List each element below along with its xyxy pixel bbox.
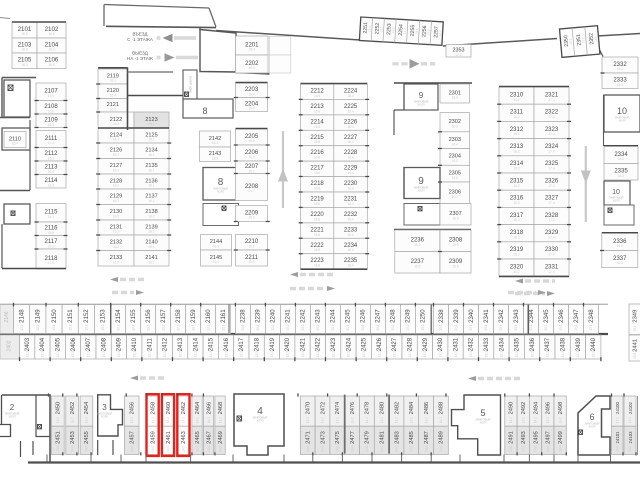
svg-text:8: 8 [218,177,224,188]
svg-text:14.2: 14.2 [365,417,369,423]
svg-text:ХОЛЛ: ХОЛЛ [417,103,424,107]
svg-text:13.3: 13.3 [439,351,443,357]
svg-text:16.0: 16.0 [617,244,623,248]
svg-text:13.1: 13.1 [391,324,395,330]
svg-text:14.0: 14.0 [70,445,74,451]
svg-text:16.0: 16.0 [213,260,219,264]
svg-text:16.6: 16.6 [314,171,320,175]
svg-text:2403: 2403 [25,337,31,351]
svg-text:14.2: 14.2 [218,417,222,423]
svg-text:13.3: 13.3 [347,351,351,357]
svg-text:13.1: 13.1 [484,324,488,330]
svg-text:13.1: 13.1 [514,324,518,330]
svg-text:2464: 2464 [195,402,201,415]
svg-text:4: 4 [257,406,263,417]
svg-text:13.2: 13.2 [594,36,599,42]
svg-text:13.1: 13.1 [574,324,578,330]
svg-text:13.1: 13.1 [406,324,410,330]
svg-text:26.0: 26.0 [249,66,255,70]
svg-text:2417: 2417 [239,337,245,351]
svg-text:14.2: 14.2 [56,417,60,423]
svg-text:16.8: 16.8 [48,32,54,36]
svg-text:15.6: 15.6 [452,264,458,268]
svg-text:2489: 2489 [439,431,445,444]
svg-text:13.3: 13.3 [209,351,213,357]
svg-text:15.4: 15.4 [48,94,54,98]
svg-text:26.4: 26.4 [249,48,255,52]
svg-text:13.3: 13.3 [576,351,580,357]
svg-text:2424: 2424 [346,337,352,351]
svg-text:24101: 24101 [615,431,620,444]
svg-text:16.1: 16.1 [148,214,154,218]
svg-text:2488: 2488 [439,402,445,415]
svg-text:2407: 2407 [86,337,92,351]
svg-text:16.6: 16.6 [314,140,320,144]
svg-text:13.3: 13.3 [270,351,274,357]
svg-text:16.4: 16.4 [110,94,116,98]
svg-text:16.0: 16.0 [452,216,458,220]
svg-text:2482: 2482 [394,402,400,415]
svg-text:14.0: 14.0 [439,445,443,451]
svg-text:2498: 2498 [558,402,564,415]
svg-text:17.4: 17.4 [548,115,554,119]
svg-text:14.0: 14.0 [558,445,562,451]
svg-text:16.2: 16.2 [513,132,519,136]
svg-text:2437: 2437 [545,337,551,351]
svg-text:14.2: 14.2 [534,417,538,423]
svg-text:13.1: 13.1 [469,324,473,330]
svg-text:20.0: 20.0 [48,170,54,174]
svg-text:13.2: 13.2 [581,37,586,43]
svg-text:2479: 2479 [365,431,371,444]
svg-text:2469: 2469 [218,431,224,444]
svg-text:16.1: 16.1 [148,230,154,234]
svg-text:13.3: 13.3 [469,351,473,357]
svg-text:16.2: 16.2 [113,214,119,218]
svg-text:14.2: 14.2 [395,417,399,423]
svg-text:13.2: 13.2 [568,38,573,44]
svg-text:16.3: 16.3 [21,48,27,52]
svg-text:16.1: 16.1 [148,138,154,142]
svg-text:13.1: 13.1 [256,324,260,330]
svg-text:15.3: 15.3 [248,216,254,220]
svg-text:16.3: 16.3 [48,123,54,127]
svg-text:2472: 2472 [320,402,326,415]
svg-text:14.0: 14.0 [85,445,89,451]
svg-text:2441: 2441 [633,339,639,352]
svg-text:16.2: 16.2 [113,260,119,264]
svg-text:16.2: 16.2 [113,153,119,157]
svg-text:16.6: 16.6 [314,187,320,191]
svg-text:13.3: 13.3 [561,351,565,357]
svg-text:14.0: 14.0 [350,445,354,451]
svg-text:16.6: 16.6 [248,139,254,143]
svg-text:16.3: 16.3 [21,63,27,67]
svg-text:13.3: 13.3 [414,28,418,34]
svg-text:13.3: 13.3 [117,351,121,357]
svg-text:17.4: 17.4 [548,235,554,239]
svg-text:2154: 2154 [115,309,122,323]
svg-text:14.2: 14.2 [166,417,170,423]
svg-text:14.2: 14.2 [321,417,325,423]
svg-text:16.4: 16.4 [347,94,353,98]
svg-text:2465: 2465 [195,431,201,444]
svg-text:2161: 2161 [220,309,227,323]
svg-text:16.1: 16.1 [110,79,116,83]
svg-text:13.1: 13.1 [52,324,56,330]
svg-text:13.1: 13.1 [191,324,195,330]
svg-text:13.1: 13.1 [559,324,563,330]
svg-text:13.3: 13.3 [224,351,228,357]
svg-text:13.3: 13.3 [163,351,167,357]
svg-text:10: 10 [617,106,627,116]
svg-text:2342: 2342 [498,309,505,323]
svg-text:2434: 2434 [499,337,505,351]
svg-text:14.0: 14.0 [207,445,211,451]
svg-text:16.1: 16.1 [213,244,219,248]
svg-text:14.2: 14.2 [521,417,525,423]
svg-text:13.3: 13.3 [56,351,60,357]
svg-text:17.4: 17.4 [548,98,554,102]
svg-text:16.2: 16.2 [113,245,119,249]
svg-text:14.2: 14.2 [207,417,211,423]
svg-text:14.2: 14.2 [439,417,443,423]
svg-text:13.3: 13.3 [367,26,371,32]
svg-text:14.0: 14.0 [321,445,325,451]
svg-text:13.1: 13.1 [116,324,120,330]
svg-text:13.3: 13.3 [132,351,136,357]
svg-text:ХОЛЛ: ХОЛЛ [588,425,595,429]
svg-text:2433: 2433 [484,337,490,351]
svg-text:8: 8 [202,106,207,116]
svg-text:16.4: 16.4 [212,141,218,145]
svg-text:13.3: 13.3 [408,351,412,357]
svg-text:2429: 2429 [423,337,429,351]
svg-text:13.1: 13.1 [20,324,24,330]
svg-text:16.2: 16.2 [452,159,458,163]
svg-text:2346: 2346 [558,309,565,323]
svg-text:13.1: 13.1 [221,324,225,330]
svg-text:16.4: 16.4 [347,233,353,237]
svg-text:16.2: 16.2 [513,115,519,119]
svg-text:17.4: 17.4 [548,167,554,171]
svg-text:13.3: 13.3 [591,351,595,357]
svg-text:2419: 2419 [270,337,276,351]
svg-text:16.1: 16.1 [148,260,154,264]
svg-text:2499: 2499 [558,431,564,444]
svg-text:2466: 2466 [206,402,212,415]
svg-text:2238: 2238 [240,309,247,323]
svg-text:16.3: 16.3 [617,261,623,265]
svg-text:2341: 2341 [483,309,490,323]
svg-text:2: 2 [10,403,15,412]
svg-text:2345: 2345 [543,309,550,323]
svg-text:2483: 2483 [394,431,400,444]
svg-text:2153: 2153 [99,309,106,323]
svg-text:15.3: 15.3 [248,155,254,159]
svg-text:14.0: 14.0 [424,445,428,451]
svg-text:13.1: 13.1 [301,324,305,330]
svg-text:ХОЛЛ: ХОЛЛ [217,190,224,194]
svg-text:16.4: 16.4 [12,142,18,146]
svg-text:15.3: 15.3 [212,156,218,160]
svg-text:16.4: 16.4 [347,125,353,129]
svg-text:13.3: 13.3 [403,28,407,34]
svg-text:13.1: 13.1 [421,324,425,330]
svg-text:13.3: 13.3 [178,351,182,357]
svg-text:14.0: 14.0 [166,445,170,451]
svg-text:16.5: 16.5 [414,264,420,268]
svg-text:16.2: 16.2 [113,168,119,172]
svg-text:14.2: 14.2 [48,215,54,219]
svg-text:16.2: 16.2 [113,122,119,126]
svg-text:2497: 2497 [546,431,552,444]
svg-text:2477: 2477 [350,431,356,444]
svg-text:13.3: 13.3 [546,351,550,357]
svg-text:13.1: 13.1 [316,324,320,330]
svg-text:17.4: 17.4 [548,184,554,188]
svg-text:2453: 2453 [70,431,76,444]
svg-text:14.0: 14.0 [182,445,186,451]
svg-text:2347: 2347 [573,309,580,323]
svg-text:14.2: 14.2 [130,417,134,423]
svg-text:16.2: 16.2 [513,184,519,188]
svg-text:17.4: 17.4 [548,218,554,222]
svg-text:НА -1 ЭТАЖ: НА -1 ЭТАЖ [127,56,154,61]
svg-text:2151: 2151 [67,309,74,323]
svg-text:2494: 2494 [533,402,539,415]
svg-text:16.3: 16.3 [48,183,54,187]
svg-text:13.3: 13.3 [25,351,29,357]
svg-text:14.0: 14.0 [410,445,414,451]
svg-text:13.1: 13.1 [161,324,165,330]
svg-text:2248: 2248 [390,309,397,323]
svg-text:ХОЛЛ: ХОЛЛ [101,415,108,419]
svg-text:2459: 2459 [150,431,156,444]
svg-text:2492: 2492 [521,402,527,415]
svg-text:14.2: 14.2 [558,417,562,423]
svg-text:24102: 24102 [628,402,633,415]
svg-text:2343: 2343 [513,309,520,323]
svg-text:16.1: 16.1 [148,122,154,126]
svg-text:14.2: 14.2 [380,417,384,423]
svg-text:2474: 2474 [335,402,341,415]
svg-text:16.2: 16.2 [513,167,519,171]
svg-text:2149: 2149 [35,309,42,323]
svg-text:13.3: 13.3 [255,351,259,357]
svg-text:2427: 2427 [392,337,398,351]
svg-text:13.3: 13.3 [148,351,152,357]
svg-text:2463: 2463 [181,431,187,444]
svg-text:17.4: 17.4 [548,253,554,257]
svg-text:2426: 2426 [377,337,383,351]
svg-text:13.1: 13.1 [271,324,275,330]
svg-text:2414: 2414 [193,337,199,351]
svg-text:2404: 2404 [40,337,46,351]
svg-text:2480: 2480 [380,402,386,415]
svg-text:16.4: 16.4 [347,217,353,221]
svg-text:16.6: 16.6 [314,94,320,98]
svg-text:2423: 2423 [331,337,337,351]
svg-text:16.2: 16.2 [513,149,519,153]
svg-text:6: 6 [589,412,594,422]
svg-text:14.0: 14.0 [218,445,222,451]
svg-text:16.5: 16.5 [48,63,54,67]
svg-text:13.3: 13.3 [438,30,442,36]
svg-text:13.1: 13.1 [439,324,443,330]
svg-text:2241: 2241 [285,309,292,323]
svg-text:13.1: 13.1 [36,324,40,330]
svg-text:14.0: 14.0 [336,445,340,451]
svg-text:16.2: 16.2 [513,218,519,222]
svg-text:17.4: 17.4 [548,201,554,205]
svg-text:13.3: 13.3 [362,351,366,357]
svg-text:14.2: 14.2 [85,417,89,423]
svg-text:14.0: 14.0 [56,445,60,451]
svg-text:2243: 2243 [315,309,322,323]
svg-text:13.3: 13.3 [301,351,305,357]
svg-text:22.2: 22.2 [48,244,54,248]
svg-text:2461: 2461 [166,431,172,444]
svg-text:16.4: 16.4 [452,142,458,146]
svg-text:2152: 2152 [83,309,90,323]
svg-text:ВЫЕЗД: ВЫЕЗД [132,51,148,56]
svg-text:2478: 2478 [365,402,371,415]
svg-text:13.3: 13.3 [393,351,397,357]
svg-text:13.1: 13.1 [68,324,72,330]
svg-text:16.6: 16.6 [314,109,320,113]
svg-text:13.3: 13.3 [41,351,45,357]
svg-text:2410: 2410 [132,337,138,351]
svg-text:14.2: 14.2 [546,417,550,423]
svg-text:14.2: 14.2 [151,417,155,423]
svg-text:16.6: 16.6 [21,32,27,36]
svg-text:2468: 2468 [218,402,224,415]
svg-text:14.2: 14.2 [306,417,310,423]
svg-text:13.3: 13.3 [331,351,335,357]
svg-text:2456: 2456 [130,402,136,415]
svg-text:2473: 2473 [320,431,326,444]
svg-text:16.6: 16.6 [314,125,320,129]
svg-text:17.9: 17.9 [48,261,54,265]
svg-text:2493: 2493 [521,431,527,444]
svg-text:2340: 2340 [468,309,475,323]
svg-text:16.4: 16.4 [347,171,353,175]
svg-text:14.2: 14.2 [336,417,340,423]
svg-text:13.1: 13.1 [633,325,637,331]
svg-text:13.3: 13.3 [454,351,458,357]
svg-text:16.1: 16.1 [414,243,420,247]
svg-text:2422: 2422 [316,337,322,351]
svg-text:15.6: 15.6 [452,243,458,247]
svg-text:14.2: 14.2 [350,417,354,423]
svg-text:17.4: 17.4 [548,270,554,274]
svg-text:2405: 2405 [56,337,62,351]
svg-text:2462: 2462 [181,402,187,415]
svg-text:ВЪЕЗД: ВЪЕЗД [133,32,148,37]
svg-text:16.6: 16.6 [314,156,320,160]
svg-text:ХОЛЛ: ХОЛЛ [618,119,625,123]
svg-text:13.3: 13.3 [530,351,534,357]
svg-text:2148: 2148 [18,309,25,323]
svg-text:13.1: 13.1 [529,324,533,330]
svg-text:16.2: 16.2 [452,124,458,128]
svg-text:17.2: 17.2 [455,53,461,57]
svg-text:2415: 2415 [209,337,215,351]
svg-text:13.1: 13.1 [361,324,365,330]
svg-text:16.4: 16.4 [347,248,353,252]
svg-text:2455: 2455 [84,431,90,444]
svg-text:16.4: 16.4 [248,93,254,97]
svg-text:13.3: 13.3 [484,351,488,357]
svg-text:16.8: 16.8 [48,231,54,235]
svg-text:13.1: 13.1 [331,324,335,330]
svg-text:16.1: 16.1 [148,153,154,157]
svg-text:9: 9 [419,91,424,100]
svg-text:16.1: 16.1 [148,245,154,249]
svg-text:15.3: 15.3 [248,107,254,111]
svg-text:16.3: 16.3 [48,156,54,160]
svg-text:16.2: 16.2 [513,253,519,257]
svg-text:2481: 2481 [380,431,386,444]
svg-text:2249: 2249 [405,309,412,323]
svg-text:2476: 2476 [350,402,356,415]
svg-text:16.1: 16.1 [148,199,154,203]
svg-text:ЛИФТ. ШАХТА: ЛИФТ. ШАХТА [189,76,193,93]
svg-text:2486: 2486 [424,402,430,415]
svg-text:ХОЛЛ: ХОЛЛ [8,415,15,419]
svg-text:2244: 2244 [330,309,337,323]
svg-text:2146: 2146 [4,311,10,322]
svg-text:17.3: 17.3 [48,141,54,145]
svg-text:2408: 2408 [101,337,107,351]
svg-text:2454: 2454 [84,402,90,415]
svg-text:17.4: 17.4 [548,149,554,153]
svg-text:2431: 2431 [453,337,459,351]
svg-text:13.3: 13.3 [194,351,198,357]
svg-text:16.5: 16.5 [452,176,458,180]
svg-text:2458: 2458 [150,402,156,415]
svg-text:С -1 ЭТАЖА: С -1 ЭТАЖА [127,37,153,42]
svg-text:2471: 2471 [306,431,312,444]
svg-text:16.6: 16.6 [314,217,320,221]
svg-text:16.1: 16.1 [110,108,116,112]
svg-text:13.3: 13.3 [316,351,320,357]
svg-text:13.1: 13.1 [286,324,290,330]
svg-text:2496: 2496 [546,402,552,415]
svg-text:16.2: 16.2 [113,138,119,142]
svg-text:24103: 24103 [628,431,633,444]
svg-text:13.3: 13.3 [500,351,504,357]
svg-text:14.0: 14.0 [306,445,310,451]
svg-text:2451: 2451 [56,431,62,444]
svg-text:13.1: 13.1 [499,324,503,330]
svg-text:13.3: 13.3 [426,29,430,35]
svg-text:14.0: 14.0 [130,445,134,451]
svg-text:2338: 2338 [438,309,445,323]
svg-text:2158: 2158 [175,309,182,323]
svg-text:2242: 2242 [300,309,307,323]
svg-text:14.2: 14.2 [182,417,186,423]
svg-text:16.3: 16.3 [48,110,54,114]
svg-text:16.1: 16.1 [248,244,254,248]
svg-text:2156: 2156 [145,309,152,323]
svg-text:13.3: 13.3 [633,352,637,358]
svg-text:2157: 2157 [160,309,167,323]
svg-text:2155: 2155 [130,309,137,323]
svg-text:2440: 2440 [591,337,597,351]
svg-text:2240: 2240 [270,309,277,323]
